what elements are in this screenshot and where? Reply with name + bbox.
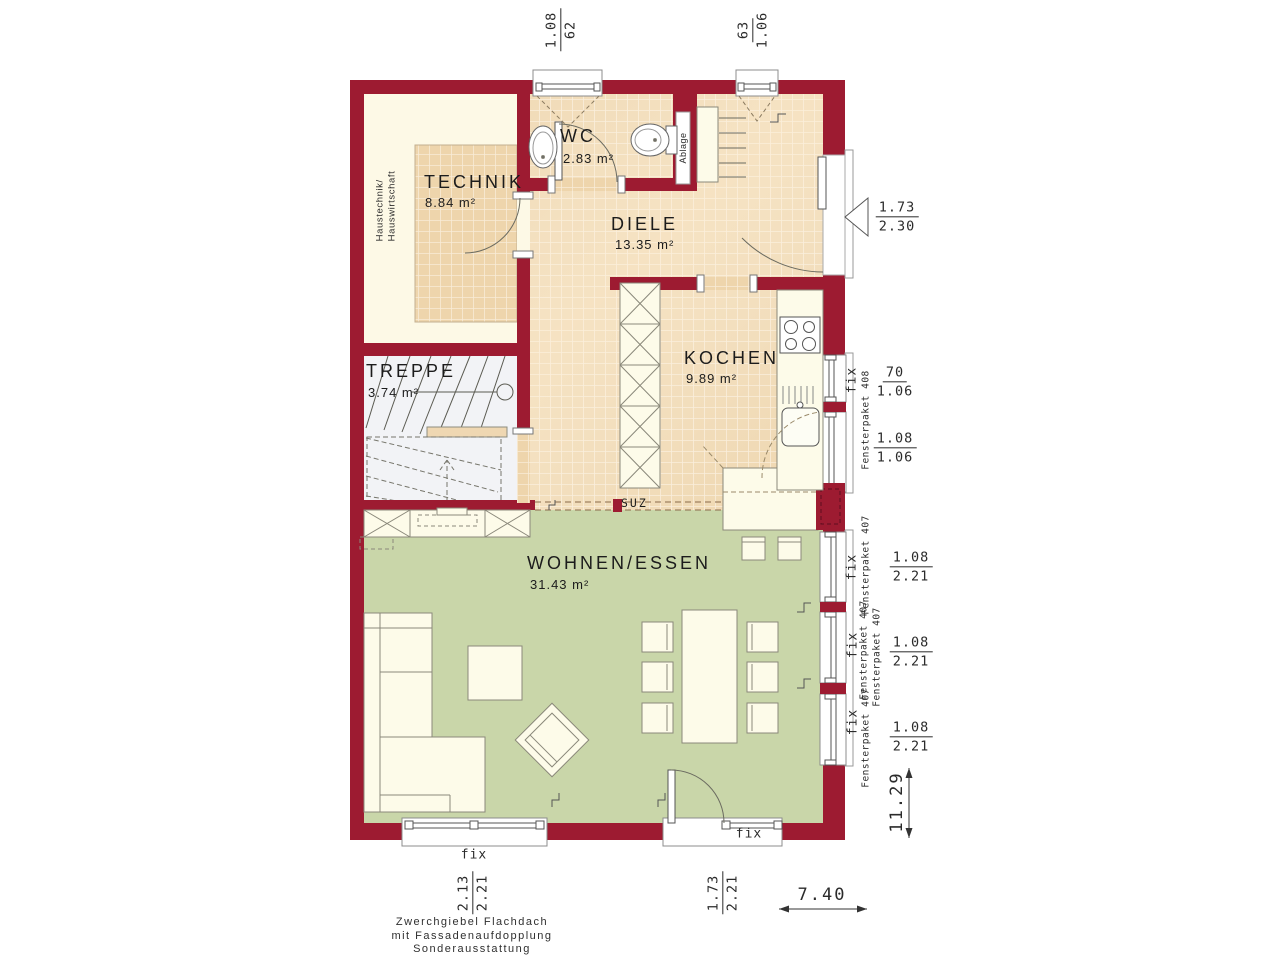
suz-label: SUZ: [621, 496, 648, 510]
room-area-kochen: 9.89 m²: [686, 371, 737, 386]
kitchen-tall-cabinets: [620, 283, 660, 488]
fix-label-living-1: fix: [845, 554, 860, 580]
dining-table: [682, 610, 737, 743]
dim-top-right-window: 63 1.06: [735, 9, 770, 52]
room-area-wc: 2.83 m²: [563, 151, 614, 166]
stool: [742, 537, 765, 560]
dim-terrace-window: 2.13 2.21: [455, 872, 490, 915]
room-label-diele: DIELE: [611, 214, 678, 235]
dim-terrace-door: 1.73 2.21: [705, 872, 740, 915]
room-area-wohnen-essen: 31.43 m²: [530, 577, 589, 592]
dim-entrance-door: 1.73 2.30: [876, 199, 919, 234]
dim-kitchen-window-small: 70 1.06: [874, 364, 917, 399]
wc-window: [533, 70, 602, 96]
dim-overall-width: 7.40: [798, 885, 847, 905]
fix-label-living-3: fix: [846, 709, 861, 735]
dim-living-window-1: 1.08 2.21: [890, 549, 933, 584]
room-area-diele: 13.35 m²: [615, 237, 674, 252]
room-label-wc: WC: [560, 126, 596, 147]
fensterpaket-407-label-2b: Fensterpaket 407: [872, 607, 883, 707]
wall-left: [350, 80, 364, 840]
fix-label-terrace: fix: [736, 827, 762, 842]
faucet: [797, 402, 803, 408]
room-label-technik: TECHNIK: [424, 172, 524, 193]
room-label-treppe: TREPPE: [366, 361, 456, 382]
fix-label-kitchen: fix: [845, 367, 860, 393]
dim-overall-depth: 11.29: [887, 771, 907, 832]
fensterpaket-407-label-2a: Fensterpaket 407: [859, 600, 870, 700]
stair-newel-circle: [497, 384, 513, 400]
plan-footnote: Zwerchgiebel Flachdach mit Fassadenaufdo…: [352, 916, 592, 957]
dim-kitchen-window-large: 1.08 1.06: [874, 430, 917, 465]
room-label-kochen: KOCHEN: [684, 348, 779, 369]
room-area-technik: 8.84 m²: [425, 195, 476, 210]
fensterpaket-407-label-3: Fensterpaket 407: [861, 688, 872, 788]
floor-plan-svg: [0, 0, 1280, 960]
sink: [782, 408, 819, 446]
room-label-wohnen-essen: WOHNEN/ESSEN: [527, 553, 711, 574]
fix-label-bottom-window: fix: [461, 848, 487, 863]
coffee-table: [468, 646, 522, 700]
dim-top-left-window: 1.08 62: [543, 9, 578, 52]
wardrobe: [697, 107, 718, 182]
ablage-label: Ablage: [678, 132, 688, 163]
dim-living-window-3: 1.08 2.21: [890, 719, 933, 754]
fensterpaket-408-label: Fensterpaket 408: [861, 370, 872, 470]
haustechnik-label: Haustechnik/ Hauswirtschaft: [375, 171, 398, 242]
room-area-treppe: 3.74 m²: [368, 385, 419, 400]
floor-plan: TECHNIK 8.84 m² WC 2.83 m² DIELE 13.35 m…: [0, 0, 1280, 960]
stool: [778, 537, 801, 560]
dim-living-window-2: 1.08 2.21: [890, 634, 933, 669]
